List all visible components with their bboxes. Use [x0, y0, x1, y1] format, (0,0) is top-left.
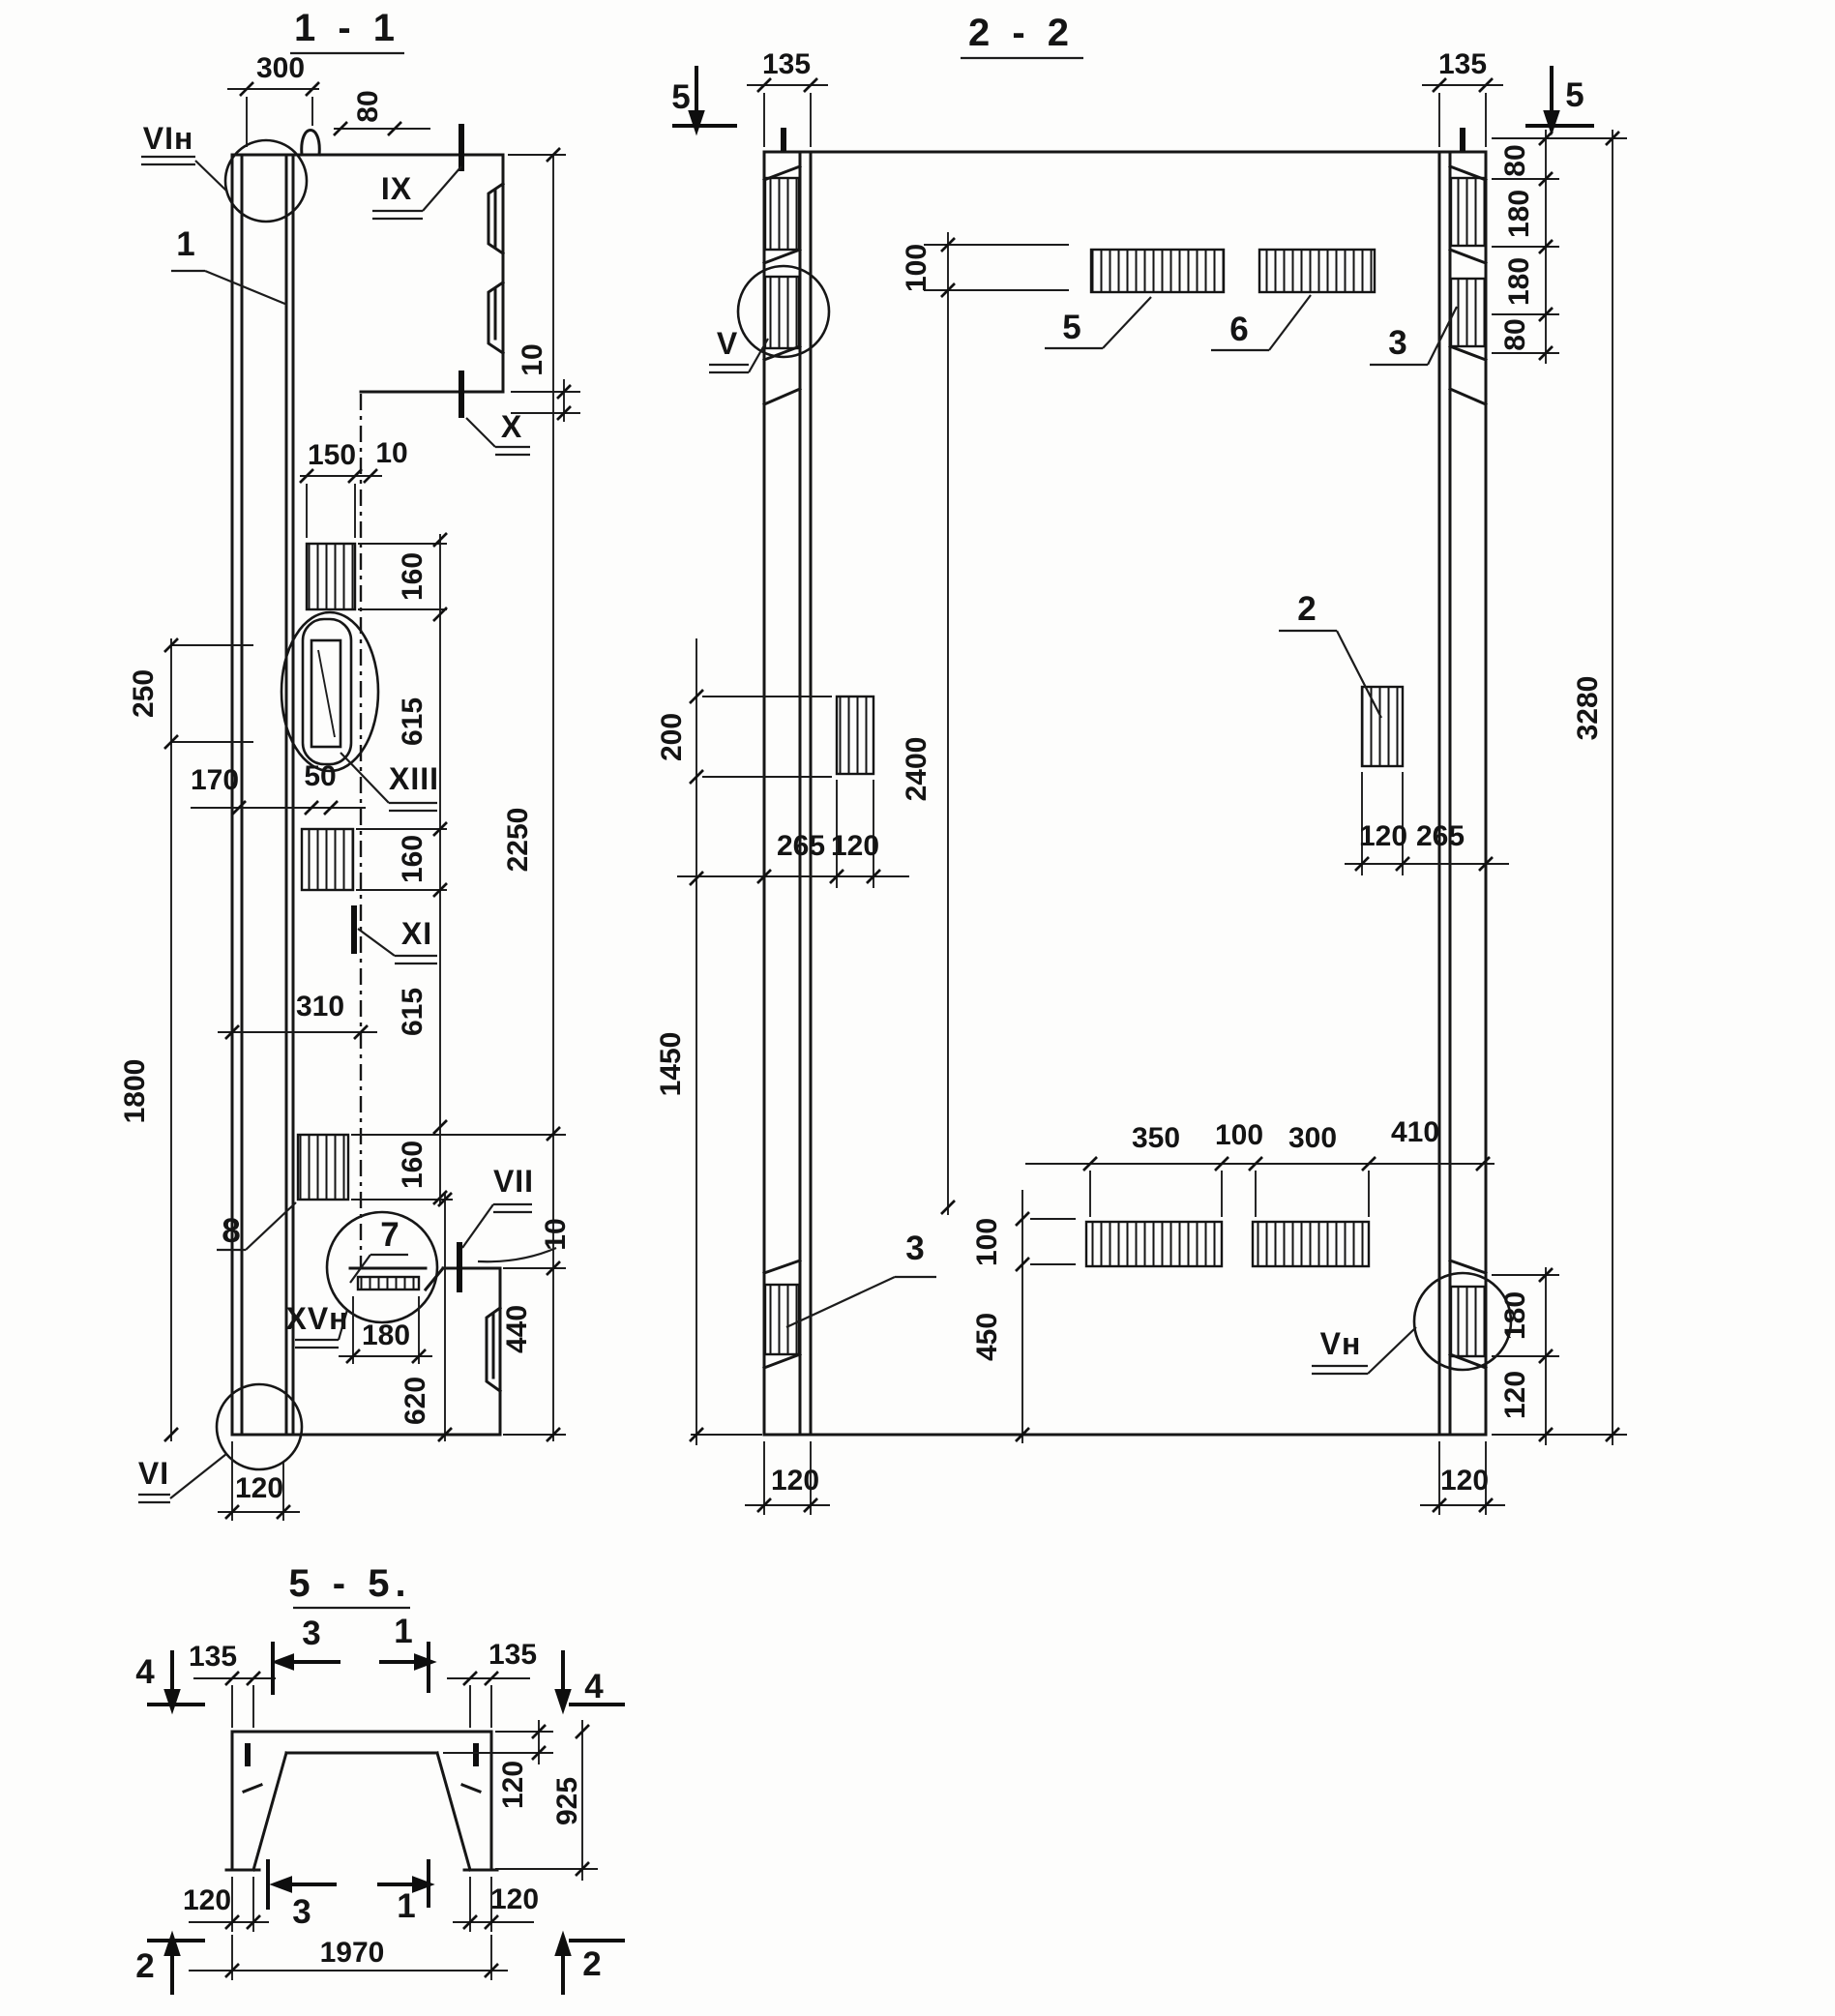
dim-310: 310 [296, 991, 344, 1023]
label-vii: VII [493, 1164, 534, 1199]
label-2: 2 [1297, 590, 1316, 628]
dim-3280: 3280 [1572, 676, 1604, 741]
label-vin: VIн [143, 121, 194, 156]
dim-10-top: 10 [375, 437, 407, 469]
dim-2250: 2250 [502, 808, 534, 873]
dim-180b: 180 [1503, 257, 1535, 306]
dim-1800: 1800 [119, 1059, 151, 1124]
marker-3-bottom: 3 [292, 1893, 311, 1931]
detail-circle-vi [217, 1384, 302, 1469]
dim-250: 250 [128, 669, 160, 718]
dim-1450: 1450 [655, 1032, 687, 1097]
dim-120-left: 120 [831, 830, 879, 862]
dim-450: 450 [971, 1313, 1003, 1361]
marker-1-top: 1 [394, 1613, 412, 1650]
marker-5-left: 5 [671, 78, 690, 116]
marker-5-right: 5 [1565, 76, 1583, 114]
label-xi: XI [401, 916, 432, 951]
dim-160c: 160 [397, 1141, 429, 1189]
dim-180: 180 [362, 1319, 410, 1351]
marker-4-left: 4 [135, 1653, 155, 1691]
dim-120-bottom-right: 120 [1440, 1465, 1489, 1497]
dim-620: 620 [400, 1377, 431, 1425]
dim-160a: 160 [397, 552, 429, 601]
section-5-5-view: 5 - 5. 3 1 4 135 135 4 120 925 3 1 120 1… [135, 1562, 625, 1995]
embedded-plate-br [1253, 1222, 1369, 1266]
label-1: 1 [176, 225, 194, 263]
label-3-bottom: 3 [905, 1230, 924, 1267]
dim-80a: 80 [1499, 144, 1531, 176]
slot-diagonal [318, 650, 335, 737]
label-7: 7 [380, 1216, 399, 1254]
rib-hatch-right-mid [1451, 279, 1485, 346]
rib-hatch-right-bottom [1451, 1287, 1485, 1356]
structural-drawing: 1 - 1 300 80 VIн 1 IX 10 X 150 10 160 61… [0, 0, 1835, 2016]
embedded-plate-bl [1086, 1222, 1222, 1266]
marker-3-top: 3 [302, 1615, 320, 1652]
dim-1970: 1970 [320, 1937, 385, 1969]
label-vi: VI [138, 1456, 169, 1491]
label-3-top: 3 [1388, 324, 1406, 362]
label-v: V [717, 326, 738, 361]
embedded-plate-2 [1362, 687, 1403, 766]
label-6: 6 [1229, 311, 1248, 348]
label-5: 5 [1062, 309, 1080, 346]
dim-265-left: 265 [777, 830, 825, 862]
embedded-plate-left [837, 697, 873, 774]
dim-120-bottom-right: 120 [490, 1883, 539, 1915]
label-vn: Vн [1320, 1326, 1362, 1361]
lifting-pins [784, 128, 1463, 151]
dimension-ticks [164, 82, 571, 1519]
section-1-1-view: 1 - 1 300 80 VIн 1 IX 10 X 150 10 160 61… [119, 7, 580, 1521]
corner-pins [248, 1743, 476, 1766]
label-8: 8 [222, 1212, 240, 1250]
dim-120-chain: 120 [1499, 1371, 1531, 1419]
rib-hatch-left-bottom [765, 1285, 799, 1354]
rib-hatch-left-v [765, 277, 799, 348]
marker-2-right: 2 [582, 1945, 601, 1983]
label-ix: IX [381, 171, 412, 206]
embedded-plate-hatch [298, 1135, 348, 1200]
embedded-plate-hatch [302, 829, 353, 890]
dim-50: 50 [304, 760, 336, 792]
dimension-ticks [225, 1672, 589, 1977]
dim-80b: 80 [1499, 318, 1531, 350]
rib-hatch-right-top [1451, 178, 1485, 246]
dim-10-bot: 10 [540, 1218, 572, 1250]
dim-180-bottom: 180 [1499, 1291, 1531, 1340]
dim-120-web: 120 [497, 1761, 529, 1809]
dim-100-row: 100 [1215, 1119, 1263, 1151]
dim-440: 440 [501, 1305, 533, 1353]
dim-615a: 615 [397, 697, 429, 746]
label-xiii: XIII [389, 761, 439, 796]
section-1-1-outline [232, 131, 503, 1436]
dim-200: 200 [656, 713, 688, 761]
dim-265-right: 265 [1416, 820, 1465, 852]
blueprint-page: 1 - 1 300 80 VIн 1 IX 10 X 150 10 160 61… [0, 0, 1835, 2016]
dim-170: 170 [191, 764, 239, 796]
dim-300: 300 [256, 52, 305, 84]
dim-120-right: 120 [1359, 820, 1407, 852]
marker-1-bottom: 1 [397, 1887, 415, 1925]
embedded-plate-hatch [307, 544, 355, 609]
dim-10-head: 10 [517, 343, 548, 375]
dim-615b: 615 [397, 988, 429, 1036]
dim-2400: 2400 [901, 737, 932, 802]
section-1-1-title: 1 - 1 [294, 7, 400, 49]
dim-80: 80 [352, 90, 384, 122]
dim-350: 350 [1132, 1122, 1180, 1154]
dim-150: 150 [308, 439, 356, 471]
support-ledge-hatch [358, 1277, 419, 1290]
dim-100-top: 100 [901, 244, 932, 292]
rib-hatch-left-top [765, 178, 799, 250]
dim-135-right: 135 [1438, 48, 1487, 80]
dim-925: 925 [551, 1777, 583, 1825]
dimension-lines [189, 1678, 598, 1980]
section-5-5-title: 5 - 5. [288, 1562, 411, 1605]
embedded-plate-5 [1091, 250, 1224, 292]
label-x: X [501, 409, 522, 444]
dim-120-bottom-left: 120 [183, 1884, 231, 1916]
dim-120: 120 [235, 1472, 283, 1504]
embedded-plate-6 [1259, 250, 1375, 292]
dim-160b: 160 [397, 835, 429, 883]
section-2-2-title: 2 - 2 [968, 12, 1075, 54]
dim-100-bottom: 100 [971, 1218, 1003, 1266]
section-2-2-view: 2 - 2 5 5 135 135 80 180 180 80 100 2400… [655, 12, 1627, 1515]
dim-180a: 180 [1503, 190, 1535, 238]
dim-120-bottom-left: 120 [771, 1465, 819, 1497]
label-xvn: XVн [285, 1301, 348, 1336]
marker-4-right: 4 [584, 1668, 604, 1705]
dim-300: 300 [1288, 1122, 1337, 1154]
marker-2-left: 2 [135, 1947, 154, 1985]
dim-410: 410 [1391, 1116, 1439, 1148]
dim-135-left: 135 [762, 48, 811, 80]
dim-135-left: 135 [189, 1641, 237, 1673]
dim-135-right: 135 [488, 1639, 537, 1671]
